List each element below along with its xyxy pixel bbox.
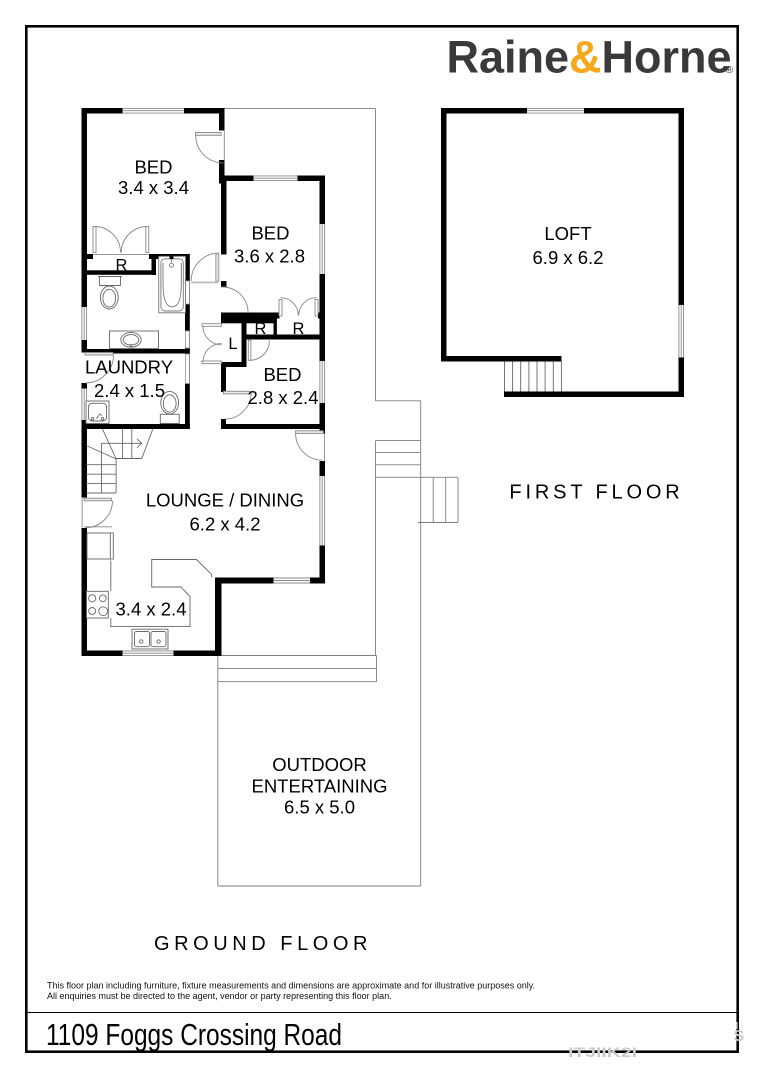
svg-text:2.4 x 1.5: 2.4 x 1.5 bbox=[94, 380, 165, 401]
svg-text:6.5 x 5.0: 6.5 x 5.0 bbox=[284, 797, 355, 818]
svg-text:LAUNDRY: LAUNDRY bbox=[85, 357, 173, 378]
svg-text:Raine&Horne: Raine&Horne bbox=[447, 32, 732, 83]
svg-text:R: R bbox=[116, 257, 128, 275]
svg-text:3.6 x 2.8: 3.6 x 2.8 bbox=[234, 246, 305, 267]
svg-text:BED: BED bbox=[263, 364, 301, 385]
svg-text:ENTERTAINING: ENTERTAINING bbox=[251, 776, 387, 797]
svg-text:LOUNGE / DINING: LOUNGE / DINING bbox=[146, 490, 304, 511]
svg-text:3.4 x 2.4: 3.4 x 2.4 bbox=[116, 599, 187, 620]
svg-text:This floor plan including furn: This floor plan including furniture, fix… bbox=[47, 981, 535, 991]
svg-text:1109 Foggs Crossing Road: 1109 Foggs Crossing Road bbox=[46, 1018, 342, 1052]
svg-text:ITJIIK2I: ITJIIK2I bbox=[568, 1044, 637, 1060]
svg-text:LOFT: LOFT bbox=[544, 223, 591, 244]
svg-text:GROUND FLOOR: GROUND FLOOR bbox=[154, 933, 372, 955]
svg-text:®: ® bbox=[726, 64, 734, 76]
svg-text:FIRST FLOOR: FIRST FLOOR bbox=[509, 481, 683, 503]
svg-text:All enquiries must be directed: All enquiries must be directed to the ag… bbox=[47, 991, 392, 1001]
svg-text:R: R bbox=[293, 320, 305, 338]
svg-text:BED: BED bbox=[251, 223, 289, 244]
svg-text:BED: BED bbox=[134, 157, 172, 178]
svg-text:6.2 x 4.2: 6.2 x 4.2 bbox=[190, 514, 261, 535]
svg-text:I: I bbox=[736, 1021, 739, 1032]
svg-text:2.8 x 2.4: 2.8 x 2.4 bbox=[248, 387, 319, 408]
svg-text:R: R bbox=[255, 320, 267, 338]
svg-text:6.9 x 6.2: 6.9 x 6.2 bbox=[533, 247, 604, 268]
svg-text:L: L bbox=[228, 335, 237, 353]
svg-text:OUTDOOR: OUTDOOR bbox=[272, 754, 367, 775]
svg-text:3.4 x 3.4: 3.4 x 3.4 bbox=[118, 177, 189, 198]
